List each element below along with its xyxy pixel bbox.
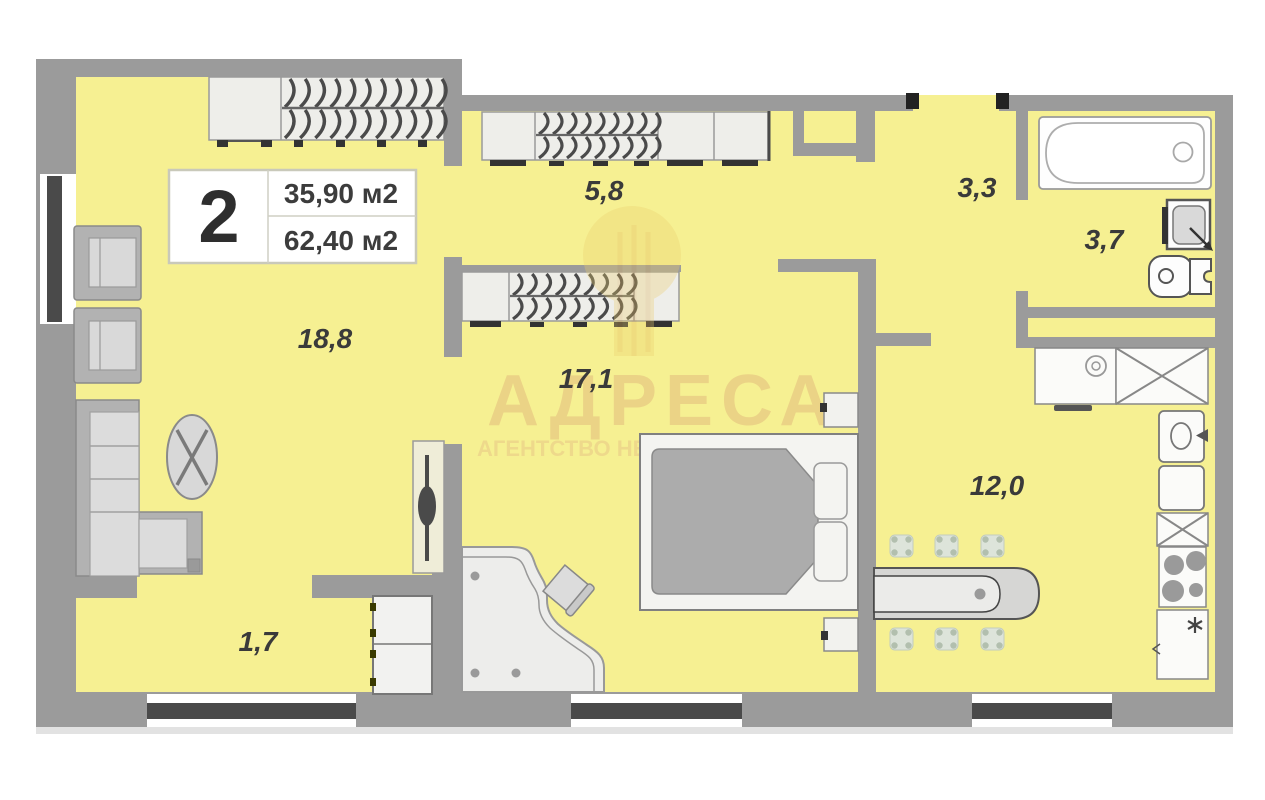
svg-text:35,90 м2: 35,90 м2 [284, 178, 398, 209]
svg-text:1,7: 1,7 [239, 626, 279, 657]
svg-text:12,0: 12,0 [970, 470, 1025, 501]
svg-text:2: 2 [198, 175, 239, 258]
svg-text:17,1: 17,1 [559, 363, 614, 394]
svg-text:18,8: 18,8 [298, 323, 353, 354]
svg-text:3,7: 3,7 [1085, 224, 1125, 255]
svg-text:62,40 м2: 62,40 м2 [284, 225, 398, 256]
svg-text:3,3: 3,3 [958, 172, 997, 203]
svg-text:5,8: 5,8 [585, 175, 624, 206]
svg-text:АДРЕСА: АДРЕСА [487, 361, 839, 441]
